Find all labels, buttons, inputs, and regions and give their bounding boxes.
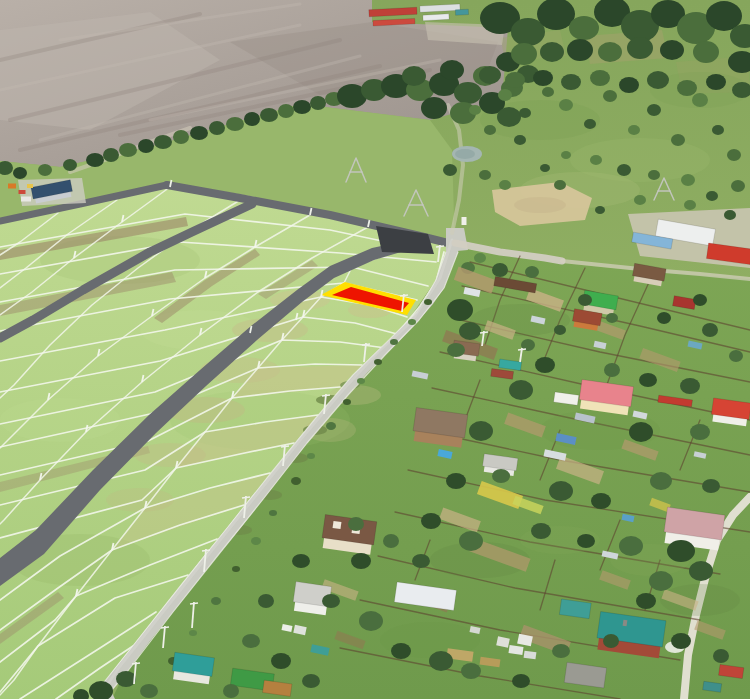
birch-row-tree bbox=[138, 139, 154, 153]
village-tree bbox=[322, 594, 340, 608]
yard-clutter bbox=[21, 197, 31, 202]
village-tree bbox=[351, 553, 371, 569]
birch-row-tree bbox=[63, 159, 77, 171]
village-tree bbox=[391, 643, 411, 659]
birch-row-tree bbox=[190, 126, 208, 140]
verge-bush bbox=[251, 537, 261, 545]
forest-tree bbox=[505, 72, 525, 88]
farm-building bbox=[423, 14, 449, 21]
aerial-photo bbox=[0, 0, 750, 699]
meadow-tree bbox=[706, 191, 718, 201]
forest-tree bbox=[706, 74, 726, 90]
village-tree bbox=[604, 363, 620, 377]
meadow-tree bbox=[561, 151, 571, 159]
birch-row-tree bbox=[86, 153, 104, 167]
base-regions bbox=[0, 0, 750, 699]
village-tree bbox=[535, 357, 555, 373]
meadow-tree bbox=[684, 200, 696, 210]
birch-row-tree bbox=[278, 104, 294, 118]
village-tree bbox=[447, 299, 473, 321]
meadow-tree bbox=[443, 164, 457, 176]
meadow-tree bbox=[671, 134, 685, 146]
village-tree bbox=[619, 536, 643, 556]
meadow-tree bbox=[590, 155, 602, 165]
meadow-tree bbox=[603, 90, 617, 102]
village-tree bbox=[412, 554, 430, 568]
village-house bbox=[171, 652, 214, 684]
meadow-tree bbox=[540, 164, 550, 172]
verge-bush bbox=[390, 339, 398, 345]
village-tree bbox=[531, 523, 551, 539]
roof-detail bbox=[623, 620, 628, 626]
village-tree bbox=[603, 634, 619, 648]
village-tree bbox=[667, 540, 695, 562]
village-tree bbox=[578, 294, 592, 306]
village-tree bbox=[649, 571, 673, 591]
meadow-tree bbox=[559, 99, 573, 111]
meadow-tree bbox=[692, 93, 708, 107]
pole-crossarm bbox=[480, 332, 488, 333]
verge-bush bbox=[326, 422, 336, 430]
pole-crossarm bbox=[190, 603, 198, 604]
forest-tree bbox=[590, 70, 610, 86]
village-tree bbox=[629, 422, 653, 442]
village-tree bbox=[429, 651, 453, 671]
village-tree bbox=[552, 644, 570, 658]
village-tree bbox=[348, 517, 364, 531]
pole-crossarm bbox=[322, 395, 330, 396]
pole-crossarm bbox=[202, 550, 210, 551]
meadow-tree bbox=[647, 104, 661, 116]
meadow-tree bbox=[519, 108, 531, 118]
meadow-tree bbox=[484, 125, 496, 135]
forest-tree bbox=[511, 43, 537, 65]
village-tree bbox=[512, 674, 530, 688]
verge-bush bbox=[211, 597, 221, 605]
forest-tree bbox=[533, 70, 553, 86]
forest-tree bbox=[497, 107, 521, 127]
meadow-tree bbox=[681, 174, 695, 186]
village-tree bbox=[639, 373, 657, 387]
verge-bush bbox=[357, 378, 365, 384]
village-tree bbox=[271, 653, 291, 669]
birch-row-tree bbox=[154, 135, 172, 149]
pole-crossarm bbox=[242, 497, 250, 498]
village-tree bbox=[461, 663, 481, 679]
birch-row-tree bbox=[119, 143, 137, 157]
forest-tree bbox=[421, 97, 447, 119]
verge-bush bbox=[408, 319, 416, 325]
birch-row-tree bbox=[226, 117, 244, 131]
verge-bush bbox=[374, 359, 382, 365]
village-tree bbox=[492, 263, 508, 277]
village-house bbox=[321, 515, 377, 556]
village-tree bbox=[680, 378, 700, 394]
pole-crossarm bbox=[400, 295, 408, 296]
pond bbox=[455, 149, 475, 159]
roof-detail bbox=[333, 521, 342, 529]
village-tree bbox=[302, 674, 320, 688]
verge-bush bbox=[474, 253, 486, 263]
birch-row-tree bbox=[209, 121, 225, 135]
forest-tree bbox=[402, 66, 426, 86]
forest-tree bbox=[619, 77, 639, 93]
village-tree bbox=[116, 671, 136, 687]
meadow-tree bbox=[628, 125, 640, 135]
forest-tree bbox=[440, 60, 464, 80]
birch-row-tree bbox=[38, 164, 52, 176]
birch-row-tree bbox=[310, 96, 326, 110]
village-tree bbox=[671, 633, 691, 649]
forest-tree bbox=[561, 74, 581, 90]
forest-tree bbox=[693, 41, 719, 63]
verge-bush bbox=[424, 299, 432, 305]
village-tree bbox=[359, 611, 383, 631]
village-tree bbox=[577, 534, 595, 548]
village-tree bbox=[693, 294, 707, 306]
birch-row-tree bbox=[13, 167, 27, 179]
farm-building bbox=[455, 9, 468, 15]
village-tree bbox=[650, 472, 672, 490]
village-tree bbox=[459, 531, 483, 551]
village-tree bbox=[258, 594, 274, 608]
village-tree bbox=[383, 534, 399, 548]
village-tree bbox=[509, 380, 533, 400]
meadow-tree bbox=[727, 149, 741, 161]
birch-row-tree bbox=[260, 108, 278, 122]
village-tree bbox=[446, 473, 466, 489]
meadow-tree bbox=[479, 170, 491, 180]
verge-bush bbox=[291, 477, 301, 485]
forest-tree bbox=[569, 16, 599, 40]
village-tree bbox=[690, 424, 710, 440]
meadow-tree bbox=[498, 89, 512, 101]
yard-clutter bbox=[27, 184, 33, 188]
yard-clutter bbox=[19, 190, 26, 194]
forest-tree bbox=[660, 40, 684, 60]
sand-mottle bbox=[514, 197, 566, 213]
meadow-tree bbox=[634, 195, 646, 205]
pole-crossarm bbox=[132, 663, 140, 664]
village-tree bbox=[713, 649, 729, 663]
verge-bush bbox=[189, 630, 197, 636]
meadow-tree bbox=[731, 180, 745, 192]
meadow-tree bbox=[514, 135, 526, 145]
meadow-tree bbox=[595, 206, 605, 214]
village-tree bbox=[492, 469, 510, 483]
village-tree bbox=[591, 493, 611, 509]
village-tree bbox=[447, 343, 465, 357]
meadow-tree bbox=[648, 170, 660, 180]
yard-clutter bbox=[462, 217, 467, 225]
village-tree bbox=[525, 266, 539, 278]
village-tree bbox=[606, 313, 618, 323]
meadow-tree bbox=[617, 164, 631, 176]
pole-crossarm bbox=[518, 349, 526, 350]
village-tree bbox=[657, 312, 671, 324]
meadow-tree bbox=[469, 105, 481, 115]
meadow-tree bbox=[724, 210, 736, 220]
forest-tree bbox=[677, 80, 697, 96]
village-tree bbox=[459, 322, 481, 340]
forest-tree bbox=[479, 66, 501, 84]
village-tree bbox=[689, 561, 713, 581]
village-tree bbox=[242, 634, 260, 648]
birch-row-tree bbox=[244, 112, 260, 126]
forest-tree bbox=[540, 42, 564, 62]
forest-tree bbox=[454, 82, 482, 104]
meadow-tree bbox=[554, 180, 566, 190]
meadow-tree bbox=[499, 180, 511, 190]
forest-tree bbox=[647, 71, 669, 89]
village-tree bbox=[421, 513, 441, 529]
village-tree bbox=[223, 684, 239, 698]
village-tree bbox=[636, 593, 656, 609]
village-tree bbox=[702, 323, 718, 337]
house-roof bbox=[423, 14, 449, 21]
meadow-tree bbox=[542, 87, 554, 97]
village-tree bbox=[554, 325, 566, 335]
birch-row-tree bbox=[103, 148, 119, 162]
forest-tree bbox=[627, 37, 653, 59]
birch-row-tree bbox=[173, 130, 189, 144]
forest-tree bbox=[567, 39, 593, 61]
pole-crossarm bbox=[161, 627, 169, 628]
forest-tree bbox=[598, 42, 622, 62]
verge-bush bbox=[307, 453, 315, 459]
verge-bush bbox=[232, 566, 240, 572]
meadow-tree bbox=[712, 125, 724, 135]
village-tree bbox=[702, 479, 720, 493]
aerial-photo-stage bbox=[0, 0, 750, 699]
village-tree bbox=[292, 554, 310, 568]
village-tree bbox=[729, 350, 743, 362]
village-tree bbox=[140, 684, 158, 698]
meadow-tree bbox=[584, 119, 596, 129]
village-tree bbox=[469, 421, 493, 441]
village-house bbox=[412, 408, 468, 449]
pole-crossarm bbox=[362, 344, 370, 345]
village-tree bbox=[549, 481, 573, 501]
pole-crossarm bbox=[281, 446, 289, 447]
pole-crossarm bbox=[436, 246, 444, 247]
verge-bush bbox=[269, 510, 277, 516]
birch-row-tree bbox=[293, 100, 311, 114]
yard-clutter bbox=[8, 184, 16, 189]
verge-bush bbox=[343, 399, 351, 405]
house-roof bbox=[455, 9, 468, 15]
